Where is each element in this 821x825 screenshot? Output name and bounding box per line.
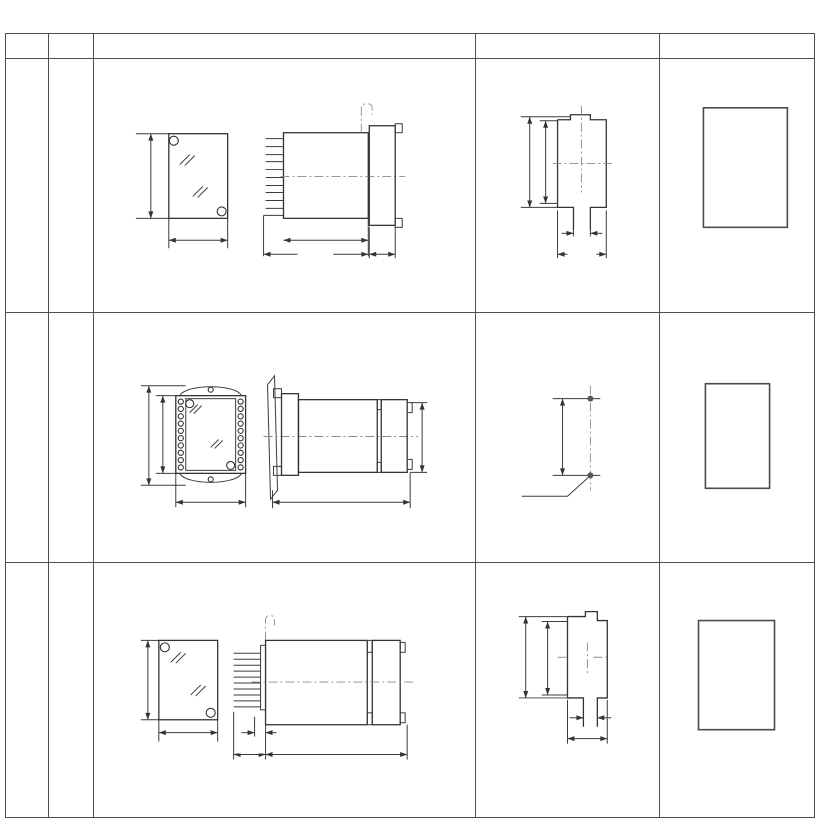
mounting-drawing-row1	[476, 59, 660, 313]
dim-104	[545, 622, 550, 695]
terminal-drawing-row2	[660, 313, 814, 563]
terminal-column-left	[178, 399, 183, 470]
terminal-box	[699, 621, 775, 730]
terminal-drawing-row3	[660, 563, 814, 817]
manual-page	[0, 0, 821, 825]
fig-no-row2	[6, 313, 49, 563]
mounting-drawing-row2	[476, 313, 660, 563]
header-structure	[49, 34, 94, 59]
panel-cutout	[553, 106, 613, 231]
dim-100-5	[284, 238, 369, 243]
header-outline-dims	[94, 34, 476, 59]
dim-149	[146, 386, 151, 486]
header-fig-no	[6, 34, 49, 59]
dim-156	[273, 500, 411, 505]
dim-133	[560, 399, 565, 476]
terminal-box	[705, 384, 769, 489]
terminal-svg-row3	[660, 563, 814, 817]
mounting-svg-row3	[476, 563, 659, 817]
dim-125	[160, 396, 165, 474]
outline-svg-row2	[94, 313, 475, 562]
header-mounting-dims	[476, 34, 660, 59]
dim-64	[558, 252, 607, 257]
screw-hole	[227, 461, 235, 469]
front-view	[136, 134, 228, 249]
dim-35	[369, 252, 395, 257]
mounting-svg-row2	[476, 313, 659, 562]
front-view	[141, 640, 218, 741]
structure-row3	[49, 563, 94, 817]
dim-31-5-and-126	[234, 746, 408, 757]
mounting-drawing-row3	[476, 563, 660, 817]
dim-72	[169, 238, 228, 243]
dim-72	[159, 730, 218, 735]
dim-16	[562, 231, 603, 236]
side-view	[234, 616, 414, 760]
terminal-svg-row2	[660, 313, 814, 562]
handle-centerline	[266, 616, 275, 641]
screw-hole	[206, 708, 215, 717]
dim-105	[176, 500, 246, 505]
glass-hatch	[190, 405, 223, 449]
outline-drawing-row3	[94, 563, 476, 817]
terminal-column-right	[238, 399, 243, 470]
flange-hole	[208, 387, 213, 392]
structure-row2	[49, 313, 94, 563]
dim-9-5	[242, 730, 277, 735]
dim-115	[145, 640, 150, 719]
dim-16	[569, 715, 611, 720]
terminal-svg-row1	[660, 59, 814, 312]
dim-107-5	[523, 617, 528, 698]
screw-hole	[186, 400, 194, 408]
dim-107-5	[527, 117, 532, 208]
dim-115	[420, 403, 425, 473]
mounting-hole	[587, 396, 593, 402]
fig-no-row3	[6, 563, 49, 817]
outline-svg-row1	[94, 59, 475, 312]
dim-105	[543, 121, 548, 204]
panel-cutout	[558, 612, 608, 727]
side-view	[264, 104, 406, 260]
flange-hole	[208, 477, 213, 482]
header-terminal-diagram	[660, 34, 814, 59]
structure-row1	[49, 59, 94, 313]
outline-drawing-row1	[94, 59, 476, 313]
hole-note	[522, 477, 589, 496]
dim-115	[148, 134, 153, 219]
glass-hatch	[180, 155, 208, 198]
handle-centerline	[361, 104, 372, 133]
terminal-drawing-row1	[660, 59, 814, 313]
fig-no-row1	[6, 59, 49, 313]
dim-64	[568, 736, 608, 741]
front-view	[141, 386, 246, 508]
outline-drawing-row2	[94, 313, 476, 563]
screw-hole	[169, 136, 178, 145]
mounting-svg-row1	[476, 59, 659, 312]
drawing-table	[5, 33, 815, 818]
dim-122-5	[264, 248, 369, 260]
outline-svg-row3	[94, 563, 475, 817]
side-view	[264, 376, 428, 508]
terminal-box	[703, 108, 787, 228]
screw-hole	[160, 643, 169, 652]
screw-hole	[217, 207, 226, 216]
glass-hatch	[171, 652, 206, 696]
